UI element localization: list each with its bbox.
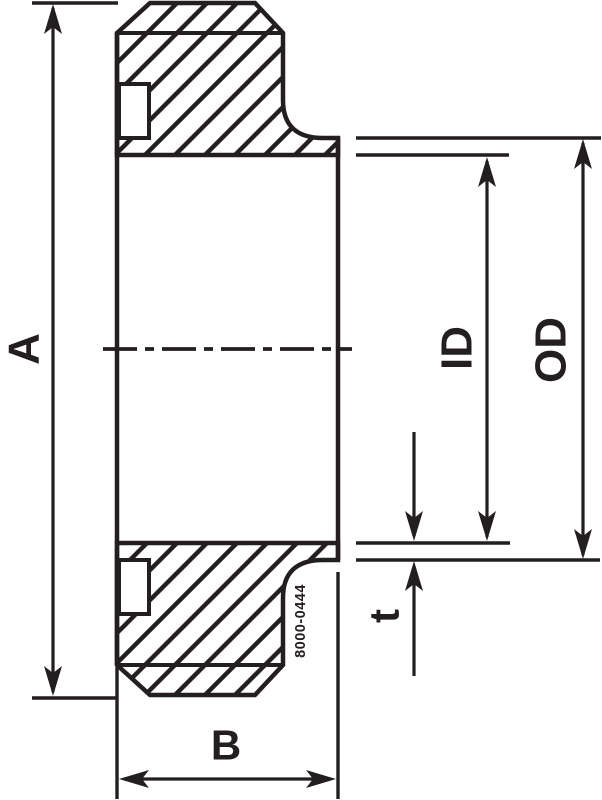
label-od: OD [526, 317, 575, 383]
dimension-a: A [0, 3, 118, 698]
label-b: B [211, 722, 241, 769]
label-a: A [0, 333, 48, 365]
drawing-number: 8000-0444 [293, 584, 309, 658]
dimension-t: t [361, 432, 423, 676]
dimension-id: ID [356, 155, 510, 543]
label-id: ID [432, 326, 481, 370]
drawing-canvas: A ID OD t B 8000-0444 [0, 0, 602, 800]
gasket-groove-bottom [119, 560, 149, 614]
label-t: t [361, 609, 408, 623]
technical-drawing: A ID OD t B 8000-0444 [0, 0, 602, 800]
gasket-groove-top [119, 84, 149, 138]
